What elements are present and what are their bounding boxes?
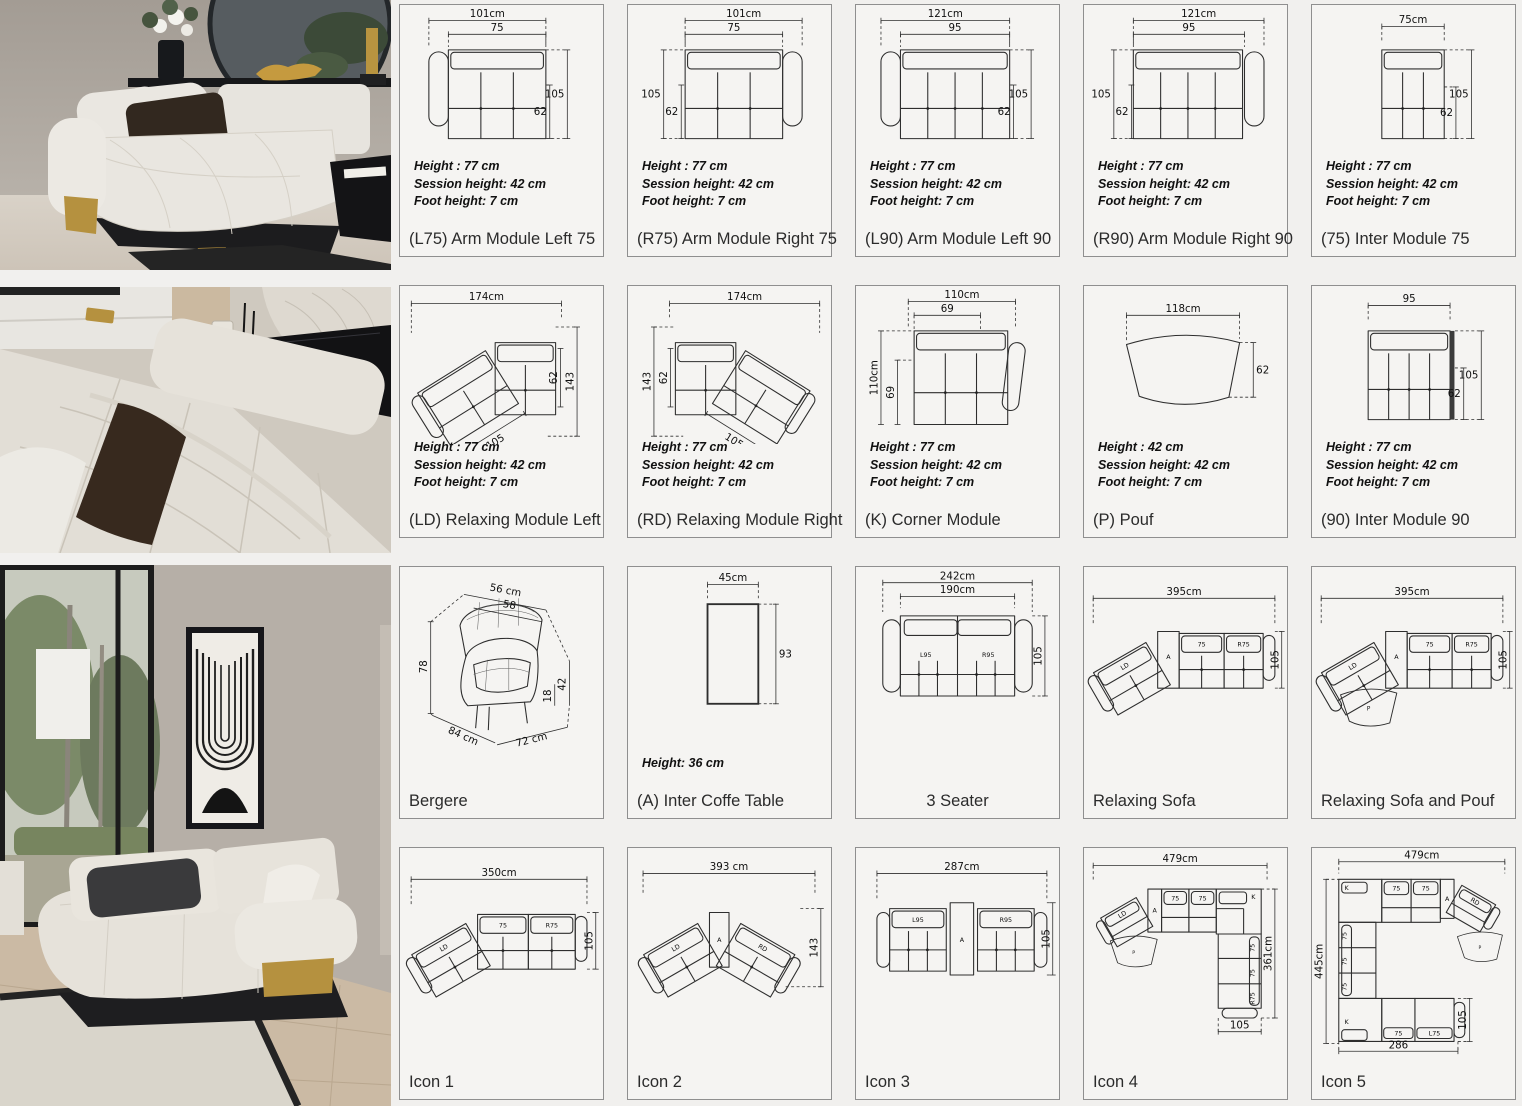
svg-text:62: 62	[659, 371, 670, 384]
card-icon-1: LD75R75350cm105Icon 1	[399, 847, 604, 1100]
svg-text:286: 286	[1389, 1039, 1409, 1051]
spec-line: Height : 77 cm	[414, 439, 546, 456]
card-title: Icon 2	[637, 1073, 682, 1092]
module-diagram: 118cm62	[1085, 288, 1286, 444]
card-title: (R75) Arm Module Right 75	[637, 230, 837, 249]
card-title: (L75) Arm Module Left 75	[409, 230, 595, 249]
svg-text:105: 105	[1033, 646, 1045, 666]
spec-line: Session height: 42 cm	[1098, 176, 1230, 193]
spec-block: Height: 36 cm	[642, 755, 724, 772]
svg-text:62: 62	[665, 107, 678, 118]
spec-line: Foot height: 7 cm	[1098, 193, 1230, 210]
svg-text:105: 105	[1040, 929, 1052, 949]
module-diagram: 121cm9510562	[857, 7, 1058, 163]
svg-text:A: A	[1394, 654, 1399, 661]
spec-line: Height : 77 cm	[1326, 158, 1458, 175]
module-diagram: LDA75R75395cm105	[1085, 569, 1286, 779]
spec-line: Session height: 42 cm	[870, 457, 1002, 474]
svg-text:R75: R75	[1249, 992, 1256, 1004]
card-title: 3 Seater	[856, 792, 1059, 811]
svg-text:R75: R75	[1465, 642, 1477, 649]
svg-text:118cm: 118cm	[1166, 304, 1201, 315]
svg-text:105: 105	[1459, 371, 1479, 382]
svg-text:42: 42	[556, 678, 568, 691]
spec-line: Session height: 42 cm	[642, 457, 774, 474]
spec-line: Height : 77 cm	[642, 439, 774, 456]
svg-text:62: 62	[998, 107, 1011, 118]
module-diagram: 45cm93	[629, 569, 830, 779]
svg-text:A: A	[1445, 896, 1450, 903]
spec-line: Height : 77 cm	[1326, 439, 1458, 456]
svg-text:R95: R95	[982, 652, 994, 659]
module-diagram: LD75R75350cm105	[401, 850, 602, 1060]
svg-text:62: 62	[534, 107, 547, 118]
spec-block: Height : 77 cmSession height: 42 cmFoot …	[1326, 158, 1458, 210]
module-diagram: L95AR95287cm105	[857, 850, 1058, 1060]
spec-line: Height : 77 cm	[870, 439, 1002, 456]
module-diagram: 479cm445cmK7575ARDP757575K75L75286105	[1313, 850, 1514, 1060]
svg-text:K: K	[1345, 1019, 1350, 1026]
card-title: (RD) Relaxing Module Right	[637, 511, 842, 530]
svg-text:393 cm: 393 cm	[710, 861, 748, 873]
svg-text:18: 18	[542, 689, 554, 702]
card-arm-module-right-75: 101cm7510562Height : 77 cmSession height…	[627, 4, 832, 257]
module-diagram: 9510562	[1313, 288, 1514, 444]
svg-text:RD: RD	[757, 943, 769, 954]
card-pouf: 118cm62Height : 42 cmSession height: 42 …	[1083, 285, 1288, 538]
svg-text:75: 75	[1342, 932, 1349, 940]
svg-text:62: 62	[1448, 389, 1461, 400]
spec-line: Height : 77 cm	[414, 158, 546, 175]
spec-block: Height : 42 cmSession height: 42 cmFoot …	[1098, 439, 1230, 491]
card-arm-module-right-90: 121cm9510562Height : 77 cmSession height…	[1083, 4, 1288, 257]
card-title: (90) Inter Module 90	[1321, 511, 1470, 530]
svg-text:242cm: 242cm	[940, 570, 975, 582]
spec-block: Height : 77 cmSession height: 42 cmFoot …	[414, 439, 546, 491]
svg-text:95: 95	[1182, 23, 1195, 34]
card-icon-2: LDARD393 cm143Icon 2	[627, 847, 832, 1100]
card-title: (LD) Relaxing Module Left	[409, 511, 601, 530]
spec-block: Height : 77 cmSession height: 42 cmFoot …	[870, 158, 1002, 210]
spec-line: Foot height: 7 cm	[1326, 474, 1458, 491]
spec-line: Foot height: 7 cm	[1098, 474, 1230, 491]
svg-text:75: 75	[491, 23, 504, 34]
svg-text:75: 75	[1171, 895, 1179, 902]
card-title: Relaxing Sofa and Pouf	[1321, 792, 1494, 811]
card-title: Icon 1	[409, 1073, 454, 1092]
svg-text:LD: LD	[1348, 662, 1359, 672]
svg-text:62: 62	[1440, 108, 1453, 119]
svg-text:105: 105	[641, 90, 661, 101]
svg-text:174cm: 174cm	[727, 292, 762, 303]
card-relaxing-sofa-and-pouf: LDA75R75P395cm105Relaxing Sofa and Pouf	[1311, 566, 1516, 819]
svg-text:75: 75	[1392, 886, 1400, 893]
spec-line: Foot height: 7 cm	[870, 474, 1002, 491]
photo-sofa-room	[0, 0, 391, 270]
svg-text:72 cm: 72 cm	[515, 730, 549, 749]
module-diagram: 75cm10562	[1313, 7, 1514, 163]
svg-text:143: 143	[566, 372, 577, 392]
svg-text:A: A	[717, 937, 722, 944]
spec-line: Height: 36 cm	[642, 755, 724, 772]
svg-text:110cm: 110cm	[870, 360, 881, 395]
svg-text:101cm: 101cm	[726, 9, 761, 20]
module-diagram: 110cm69110cm69	[857, 288, 1058, 444]
svg-text:479cm: 479cm	[1404, 850, 1439, 861]
svg-text:143: 143	[808, 938, 820, 958]
card-title: Icon 3	[865, 1073, 910, 1092]
svg-text:58: 58	[502, 598, 517, 612]
photo-livingroom-art	[0, 565, 391, 1106]
card-corner-module: 110cm69110cm69Height : 77 cmSession heig…	[855, 285, 1060, 538]
svg-text:110cm: 110cm	[944, 290, 979, 301]
spec-line: Session height: 42 cm	[1326, 176, 1458, 193]
photo-sofa-room-art	[0, 0, 391, 270]
svg-text:R95: R95	[1000, 917, 1012, 924]
svg-text:L95: L95	[920, 652, 932, 659]
svg-text:62: 62	[1115, 107, 1128, 118]
svg-text:P: P	[1132, 950, 1135, 956]
svg-text:K: K	[1251, 894, 1256, 901]
svg-text:105: 105	[583, 931, 595, 951]
spec-line: Session height: 42 cm	[642, 176, 774, 193]
svg-text:445cm: 445cm	[1314, 944, 1326, 979]
spec-line: Height : 42 cm	[1098, 439, 1230, 456]
svg-text:105: 105	[1009, 90, 1029, 101]
module-diagram: 7856 cm5884 cm72 cm4218	[401, 569, 602, 779]
spec-block: Height : 77 cmSession height: 42 cmFoot …	[642, 439, 774, 491]
module-diagram: 105174cm14362	[401, 288, 602, 444]
card-arm-module-left-75: 101cm7510562Height : 77 cmSession height…	[399, 4, 604, 257]
spec-line: Foot height: 7 cm	[642, 193, 774, 210]
spec-block: Height : 77 cmSession height: 42 cmFoot …	[414, 158, 546, 210]
spec-line: Session height: 42 cm	[414, 457, 546, 474]
svg-text:78: 78	[418, 660, 430, 673]
svg-text:A: A	[960, 937, 965, 944]
svg-text:75: 75	[1198, 642, 1206, 649]
svg-text:K: K	[1345, 885, 1350, 892]
svg-text:105: 105	[1449, 90, 1469, 101]
svg-text:69: 69	[886, 386, 897, 399]
svg-text:L75: L75	[1429, 1031, 1441, 1038]
spec-line: Session height: 42 cm	[1098, 457, 1230, 474]
card-title: Bergere	[409, 792, 468, 811]
spec-line: Height : 77 cm	[642, 158, 774, 175]
svg-text:75: 75	[727, 23, 740, 34]
svg-text:395cm: 395cm	[1166, 586, 1201, 598]
svg-text:121cm: 121cm	[928, 9, 963, 20]
card-title: (75) Inter Module 75	[1321, 230, 1470, 249]
svg-text:395cm: 395cm	[1394, 586, 1429, 598]
svg-text:84 cm: 84 cm	[446, 724, 480, 748]
photo-column	[0, 0, 391, 1106]
spec-line: Session height: 42 cm	[870, 176, 1002, 193]
svg-text:105: 105	[1230, 1019, 1250, 1031]
card-relaxing-module-right: 105174cm14362Height : 77 cmSession heigh…	[627, 285, 832, 538]
module-diagram: L95R95242cm190cm105	[857, 569, 1058, 779]
card-3-seater: L95R95242cm190cm1053 Seater	[855, 566, 1060, 819]
svg-text:75: 75	[1199, 895, 1207, 902]
card-inter-coffe-table: 45cm93Height: 36 cm(A) Inter Coffe Table	[627, 566, 832, 819]
svg-text:350cm: 350cm	[481, 867, 516, 879]
module-diagram: 101cm7510562	[629, 7, 830, 163]
svg-text:361cm: 361cm	[1262, 936, 1274, 971]
svg-text:190cm: 190cm	[940, 584, 975, 596]
svg-text:LD: LD	[1120, 662, 1131, 672]
svg-text:95: 95	[1403, 294, 1416, 305]
svg-text:R75: R75	[546, 923, 558, 930]
card-inter-module-90: 9510562Height : 77 cmSession height: 42 …	[1311, 285, 1516, 538]
svg-text:105: 105	[1091, 90, 1111, 101]
svg-text:LD: LD	[1117, 910, 1128, 920]
svg-text:174cm: 174cm	[469, 292, 504, 303]
svg-text:75: 75	[1394, 1031, 1402, 1038]
svg-text:105: 105	[1269, 650, 1281, 670]
svg-text:75: 75	[1422, 886, 1430, 893]
svg-text:75cm: 75cm	[1399, 15, 1428, 26]
spec-line: Foot height: 7 cm	[642, 474, 774, 491]
svg-text:121cm: 121cm	[1181, 9, 1216, 20]
spec-line: Foot height: 7 cm	[414, 474, 546, 491]
svg-text:P: P	[1367, 707, 1371, 713]
svg-text:75: 75	[1342, 957, 1349, 965]
svg-text:75: 75	[1249, 944, 1256, 952]
spec-line: Height : 77 cm	[1098, 158, 1230, 175]
module-diagram: 101cm7510562	[401, 7, 602, 163]
card-arm-module-left-90: 121cm9510562Height : 77 cmSession height…	[855, 4, 1060, 257]
module-diagram: LDA75R75P395cm105	[1313, 569, 1514, 779]
svg-text:75: 75	[1342, 983, 1349, 991]
card-relaxing-module-left: 105174cm14362Height : 77 cmSession heigh…	[399, 285, 604, 538]
svg-text:45cm: 45cm	[719, 572, 748, 584]
card-title: (A) Inter Coffe Table	[637, 792, 784, 811]
module-diagram: 121cm9510562	[1085, 7, 1286, 163]
card-title: Relaxing Sofa	[1093, 792, 1196, 811]
svg-text:479cm: 479cm	[1163, 853, 1198, 865]
card-title: (R90) Arm Module Right 90	[1093, 230, 1293, 249]
card-icon-3: L95AR95287cm105Icon 3	[855, 847, 1060, 1100]
svg-text:105: 105	[1457, 1010, 1469, 1030]
card-inter-module-75: 75cm10562Height : 77 cmSession height: 4…	[1311, 4, 1516, 257]
svg-text:105: 105	[1497, 650, 1509, 670]
spec-block: Height : 77 cmSession height: 42 cmFoot …	[1326, 439, 1458, 491]
module-diagram: 105174cm14362	[629, 288, 830, 444]
svg-text:105: 105	[545, 90, 565, 101]
spec-line: Session height: 42 cm	[1326, 457, 1458, 474]
svg-text:LD: LD	[439, 943, 450, 953]
svg-text:56 cm: 56 cm	[489, 582, 523, 600]
card-bergere: 7856 cm5884 cm72 cm4218Bergere	[399, 566, 604, 819]
svg-text:A: A	[1166, 654, 1171, 661]
svg-text:75: 75	[1249, 969, 1256, 977]
spec-line: Foot height: 7 cm	[414, 193, 546, 210]
spec-block: Height : 77 cmSession height: 42 cmFoot …	[1098, 158, 1230, 210]
svg-text:75: 75	[1426, 642, 1434, 649]
svg-text:75: 75	[499, 923, 507, 930]
module-diagram: LDARD393 cm143	[629, 850, 830, 1060]
svg-text:LD: LD	[671, 943, 682, 953]
svg-text:62: 62	[549, 371, 560, 384]
svg-text:62: 62	[1256, 365, 1269, 376]
svg-text:93: 93	[779, 648, 792, 660]
photo-sofa-closeup-art	[0, 287, 391, 553]
spec-line: Height : 77 cm	[870, 158, 1002, 175]
card-icon-5: 479cm445cmK7575ARDP757575K75L75286105Ico…	[1311, 847, 1516, 1100]
card-title: Icon 5	[1321, 1073, 1366, 1092]
spec-line: Foot height: 7 cm	[1326, 193, 1458, 210]
svg-text:143: 143	[643, 372, 654, 392]
spec-line: Foot height: 7 cm	[870, 193, 1002, 210]
spec-line: Session height: 42 cm	[414, 176, 546, 193]
card-title: (P) Pouf	[1093, 511, 1154, 530]
spec-block: Height : 77 cmSession height: 42 cmFoot …	[642, 158, 774, 210]
card-title: (L90) Arm Module Left 90	[865, 230, 1051, 249]
svg-text:A: A	[1153, 908, 1158, 915]
svg-text:R75: R75	[1237, 642, 1249, 649]
svg-text:L95: L95	[912, 917, 924, 924]
photo-livingroom	[0, 565, 391, 1106]
card-relaxing-sofa: LDA75R75395cm105Relaxing Sofa	[1083, 566, 1288, 819]
svg-text:101cm: 101cm	[470, 9, 505, 20]
card-title: Icon 4	[1093, 1073, 1138, 1092]
module-diagram: LDA7575K7575R75P479cm361cm105	[1085, 850, 1286, 1060]
svg-text:69: 69	[941, 304, 954, 315]
card-title: (K) Corner Module	[865, 511, 1001, 530]
svg-text:287cm: 287cm	[944, 861, 979, 873]
svg-text:95: 95	[949, 23, 962, 34]
svg-text:P: P	[1479, 945, 1482, 951]
card-icon-4: LDA7575K7575R75P479cm361cm105Icon 4	[1083, 847, 1288, 1100]
spec-card-grid: 101cm7510562Height : 77 cmSession height…	[399, 4, 1516, 1100]
spec-block: Height : 77 cmSession height: 42 cmFoot …	[870, 439, 1002, 491]
photo-sofa-closeup	[0, 287, 391, 553]
